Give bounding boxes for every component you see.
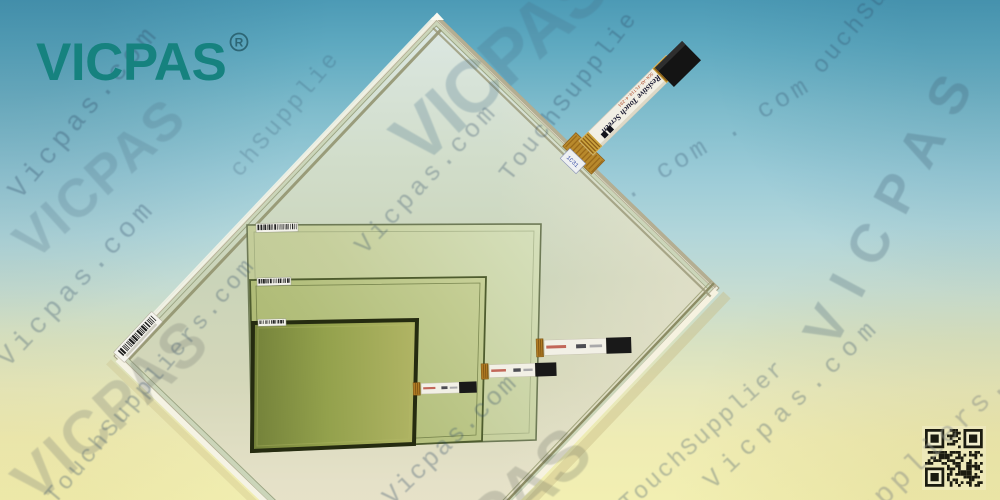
- svg-text:VICPAS: VICPAS: [36, 33, 226, 92]
- svg-text:R: R: [235, 36, 244, 50]
